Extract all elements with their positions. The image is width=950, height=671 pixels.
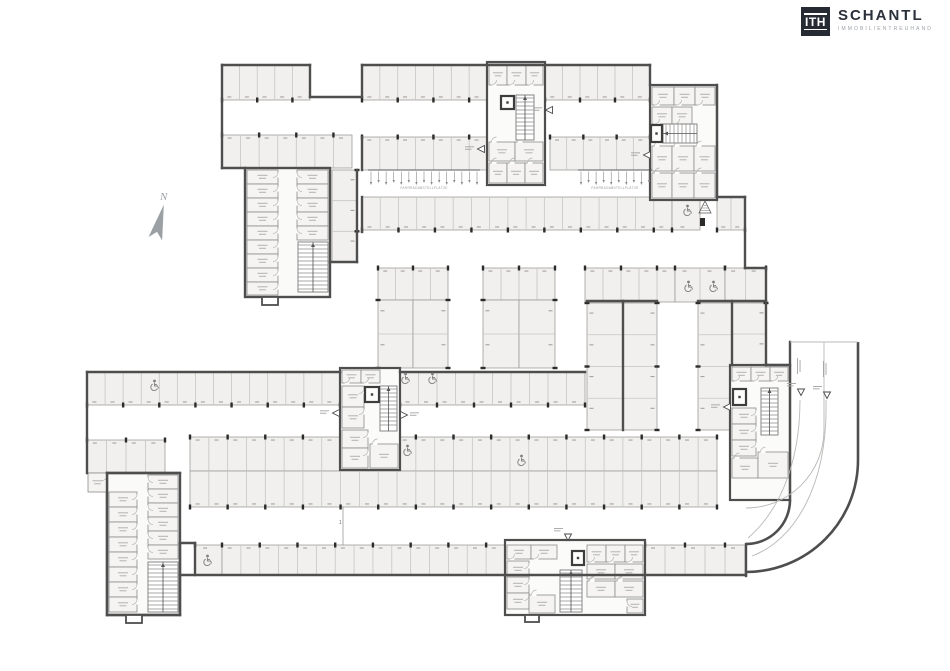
floorplan-page: FAHRRADABSTELLPLÄTZEFAHRRADABSTELLPLÄTZE… [0,0,950,671]
pillar [653,228,655,233]
stall-number [283,138,287,139]
stall-number [626,271,630,272]
storage-room [732,440,757,456]
room-label [631,604,640,605]
stall-number [513,226,517,227]
exit-label [533,107,542,108]
stall-number [183,401,187,402]
pillar [432,135,434,140]
storage-room [489,64,507,86]
storage-room [147,517,178,531]
pillar [553,367,558,369]
storage-room [361,370,380,384]
pillar [616,228,618,233]
stall-number [233,503,237,504]
stall-number [555,140,559,141]
room-label [308,189,318,190]
stall-number [416,548,420,549]
pillar [267,403,269,408]
logo-company-name: SCHANTL [838,7,933,24]
stall-number [532,226,536,227]
stall-number [666,503,670,504]
stall-number [442,310,446,311]
room-label [756,372,766,373]
pillar [565,505,567,510]
storage-room [342,386,365,407]
pillar [397,135,399,140]
stall-number [151,443,155,444]
pillar [377,266,379,271]
stall-number [397,548,401,549]
room-label [118,572,128,573]
stall-number [605,226,609,227]
room-label [529,171,539,172]
stall-number [492,548,496,549]
stall-number [214,503,218,504]
room-label [366,374,376,375]
pillar [510,403,512,408]
storage-room [109,507,138,522]
pillar [415,505,417,510]
room-label [774,372,784,373]
stall-number [381,310,385,311]
room-label [740,466,750,467]
stall-number [322,548,326,549]
room-label [624,587,634,588]
pillar [332,133,334,138]
exit-label [410,412,419,413]
room-label [158,536,168,537]
room-label [537,602,547,603]
room-label [158,522,168,523]
pillar [258,133,260,138]
stall-number [351,210,355,211]
pillar [518,266,520,271]
room-label [678,183,688,184]
pillar [189,505,191,510]
parking-row [221,133,352,169]
stall-number [381,344,385,345]
stall-number [478,440,482,441]
room-label [513,567,523,568]
room-label [348,394,358,395]
room-label [497,149,507,150]
room-label [700,183,710,184]
stall-number [262,96,266,97]
parking-row [716,197,746,233]
pillar [678,435,680,440]
pillar [334,543,336,548]
stall-number [488,271,492,272]
storage-room [507,64,526,86]
stall-number [384,503,388,504]
pillar [409,543,411,548]
stall-number [379,548,383,549]
room-label [700,156,710,157]
pillar [361,98,363,103]
stall-number [341,548,345,549]
stall-number [701,344,705,345]
room-label [513,583,523,584]
stall-number [662,271,666,272]
stall-number [360,548,364,549]
stall-number [421,140,425,141]
storage-room [507,593,530,609]
pillar [490,505,492,510]
pillar [671,228,673,233]
stall-number [271,440,275,441]
north-arrow: N [149,191,171,240]
storage-room [626,599,643,613]
storage-room [732,424,757,440]
logo-ith-mark: ITH [804,13,827,30]
stall-number [196,440,200,441]
parking-row [189,471,718,510]
storage-room [526,64,543,86]
stall-number [385,96,389,97]
elevator [651,125,662,142]
pillar [543,228,545,233]
stall-number [271,503,275,504]
pillar [412,266,414,271]
logo: ITH SCHANTL IMMOBILIENTREUHAND [801,7,933,36]
stall-number [477,226,481,227]
stall-number [367,226,371,227]
room-label [118,587,128,588]
stall-number [290,503,294,504]
room-label [350,437,360,438]
stall-number [691,548,695,549]
stall-number [233,440,237,441]
storage-room [109,522,138,537]
pillar [674,266,676,271]
stall-number [590,344,594,345]
stall-number [603,96,607,97]
room-label [739,414,749,415]
stall-number [591,503,595,504]
stall-number [535,401,539,402]
pillar [264,435,266,440]
stall-number [651,408,655,409]
room-label [514,550,524,551]
ramp-label [823,361,824,377]
staircase [560,570,582,612]
stall-number [591,440,595,441]
pillar [164,438,166,443]
stall-number [147,401,151,402]
pillar [376,299,381,301]
room-label [739,446,749,447]
parking-row [482,266,556,301]
pillar [226,505,228,510]
storage-room [606,545,625,563]
staircase [148,562,178,612]
stall-number [711,548,715,549]
pillar [468,98,470,103]
stall-number [708,271,712,272]
pillar [641,435,643,440]
pillar [194,403,196,408]
stall-number [549,344,553,345]
pillar [716,505,718,510]
stall-number [590,313,594,314]
room-label [258,189,268,190]
stall-number [641,226,645,227]
stall-number [418,271,422,272]
room-label [592,551,602,552]
stall-number [435,548,439,549]
pillar [158,403,160,408]
parking-row [377,266,449,301]
stall-number [245,96,249,97]
stall-number [534,503,538,504]
storage-room [674,87,695,106]
stall-number [459,440,463,441]
pillar [482,266,484,271]
stall-number [647,440,651,441]
stall-number [572,401,576,402]
stall-number [553,440,557,441]
parking-row [544,65,651,103]
pillar [716,228,718,233]
pillar [655,365,660,367]
room-label [347,374,357,375]
pillar [259,543,261,548]
room-label [379,454,389,455]
stall-number [478,503,482,504]
pillar [447,543,449,548]
stall-number [585,96,589,97]
pillar [507,228,509,233]
pillar [620,266,622,271]
exit-label [320,410,329,411]
room-label [258,175,268,176]
staircase [298,242,328,292]
room-label [308,231,318,232]
stall-number [255,401,259,402]
stall-number [459,503,463,504]
stall-number [622,140,626,141]
stall-number [303,548,307,549]
parking-row [376,299,414,369]
stall-number [701,376,705,377]
pillar [377,505,379,510]
elevator [365,387,379,402]
exit-arrow-icon [554,528,572,541]
storage-room [247,282,279,295]
garage-floorplan: FAHRRADABSTELLPLÄTZEFAHRRADABSTELLPLÄTZE… [0,0,950,671]
parking-row [361,135,487,171]
ramp-label [797,358,798,374]
exit-label [813,386,822,387]
room-label [739,430,749,431]
pillar [226,435,228,440]
stall-number [406,401,410,402]
room-label [629,551,639,552]
room-label [118,527,128,528]
stall-number [610,503,614,504]
pillar [603,435,605,440]
room-label [258,217,268,218]
stall-number [651,376,655,377]
pillar [528,435,530,440]
pillar [432,98,434,103]
pillar [641,505,643,510]
stall-number [457,96,461,97]
ramp-slope-icon [699,201,711,213]
storage-room [247,268,279,282]
north-label: N [159,191,168,203]
room-label [308,175,318,176]
parking-row [86,438,166,474]
room-label [657,156,667,157]
room-label [118,497,128,498]
parking-row [724,266,767,303]
pillar [584,266,586,271]
pillar [452,435,454,440]
room-label [677,113,687,114]
parking-row [696,302,733,431]
pillar [528,505,530,510]
stall-number [383,271,387,272]
stall-number [497,440,501,441]
pillar [655,429,660,431]
room-label [258,245,268,246]
pillar [302,505,304,510]
parking-row [585,302,624,431]
pillar [372,543,374,548]
pillar [397,98,399,103]
room-label [118,602,128,603]
parking-row [674,266,726,303]
stall-number [112,443,116,444]
pillar [446,367,451,369]
stall-number [651,548,655,549]
stall-number [290,440,294,441]
stall-number [298,96,302,97]
stall-number [327,503,331,504]
stall-number [367,140,371,141]
elevator [501,96,514,109]
room-label [158,480,168,481]
room-label [596,587,606,588]
exit-label [465,146,474,147]
pillar [452,505,454,510]
stall-number [517,401,521,402]
stall-number [422,226,426,227]
room-label [657,183,667,184]
stall-number [273,401,277,402]
pillar [579,98,581,103]
room-label [118,542,128,543]
parking-row [413,299,451,369]
stall-number [424,401,428,402]
stall-number [550,96,554,97]
parking-row [86,372,341,408]
room-label [118,557,128,558]
stall-number [265,138,269,139]
stall-number [252,503,256,504]
pillar [584,403,586,408]
exit-arrow-icon [401,412,420,419]
stall-number [572,503,576,504]
storage-room [770,367,788,382]
storage-room [507,577,530,593]
pillar [468,135,470,140]
storage-room [147,475,178,489]
stall-number [671,548,675,549]
storage-room [247,184,279,198]
stall-number [620,96,624,97]
stall-number [638,96,642,97]
stall-number [386,226,390,227]
storage-room [342,430,369,448]
storage-room [672,107,692,125]
exit-vestibule [525,615,539,622]
pillar [485,543,487,548]
stall-number [553,503,557,504]
stall-number [403,140,407,141]
pillar [302,435,304,440]
stall-number [572,440,576,441]
pillar [436,403,438,408]
storage-room [147,503,178,517]
stall-number [227,96,231,97]
storage-room [109,567,138,582]
pillar [415,435,417,440]
pillar [580,228,582,233]
storage-room [342,407,365,428]
storage-room [147,489,178,503]
stall-number [572,140,576,141]
stall-number [651,313,655,314]
stall-number [309,503,313,504]
stall-number [403,96,407,97]
room-label [624,569,634,570]
storage-room [247,198,279,212]
stall-number [237,401,241,402]
stall-number [401,271,405,272]
stall-number [201,401,205,402]
pillar [470,228,472,233]
staircase [761,388,778,435]
pillar [256,98,258,103]
room-label [678,156,688,157]
room-label [700,94,710,95]
room-label [539,550,549,551]
stall-number [683,271,687,272]
parking-row [584,266,675,303]
storage-room [531,545,557,560]
stall-number [309,401,313,402]
pillar [724,543,726,548]
room-label [768,463,778,464]
storage-room [109,597,138,612]
storage-room [109,582,138,597]
stall-number [644,271,648,272]
section-number: 1 [339,520,342,526]
storage-room [109,552,138,567]
pillar [678,505,680,510]
parking-row [221,543,505,576]
room-label [513,599,523,600]
stall-number [516,503,520,504]
stall-number [701,408,705,409]
north-arrow-glyph [149,203,171,240]
exit-vestibule [126,615,142,623]
storage-room [507,545,531,560]
stall-number [327,440,331,441]
